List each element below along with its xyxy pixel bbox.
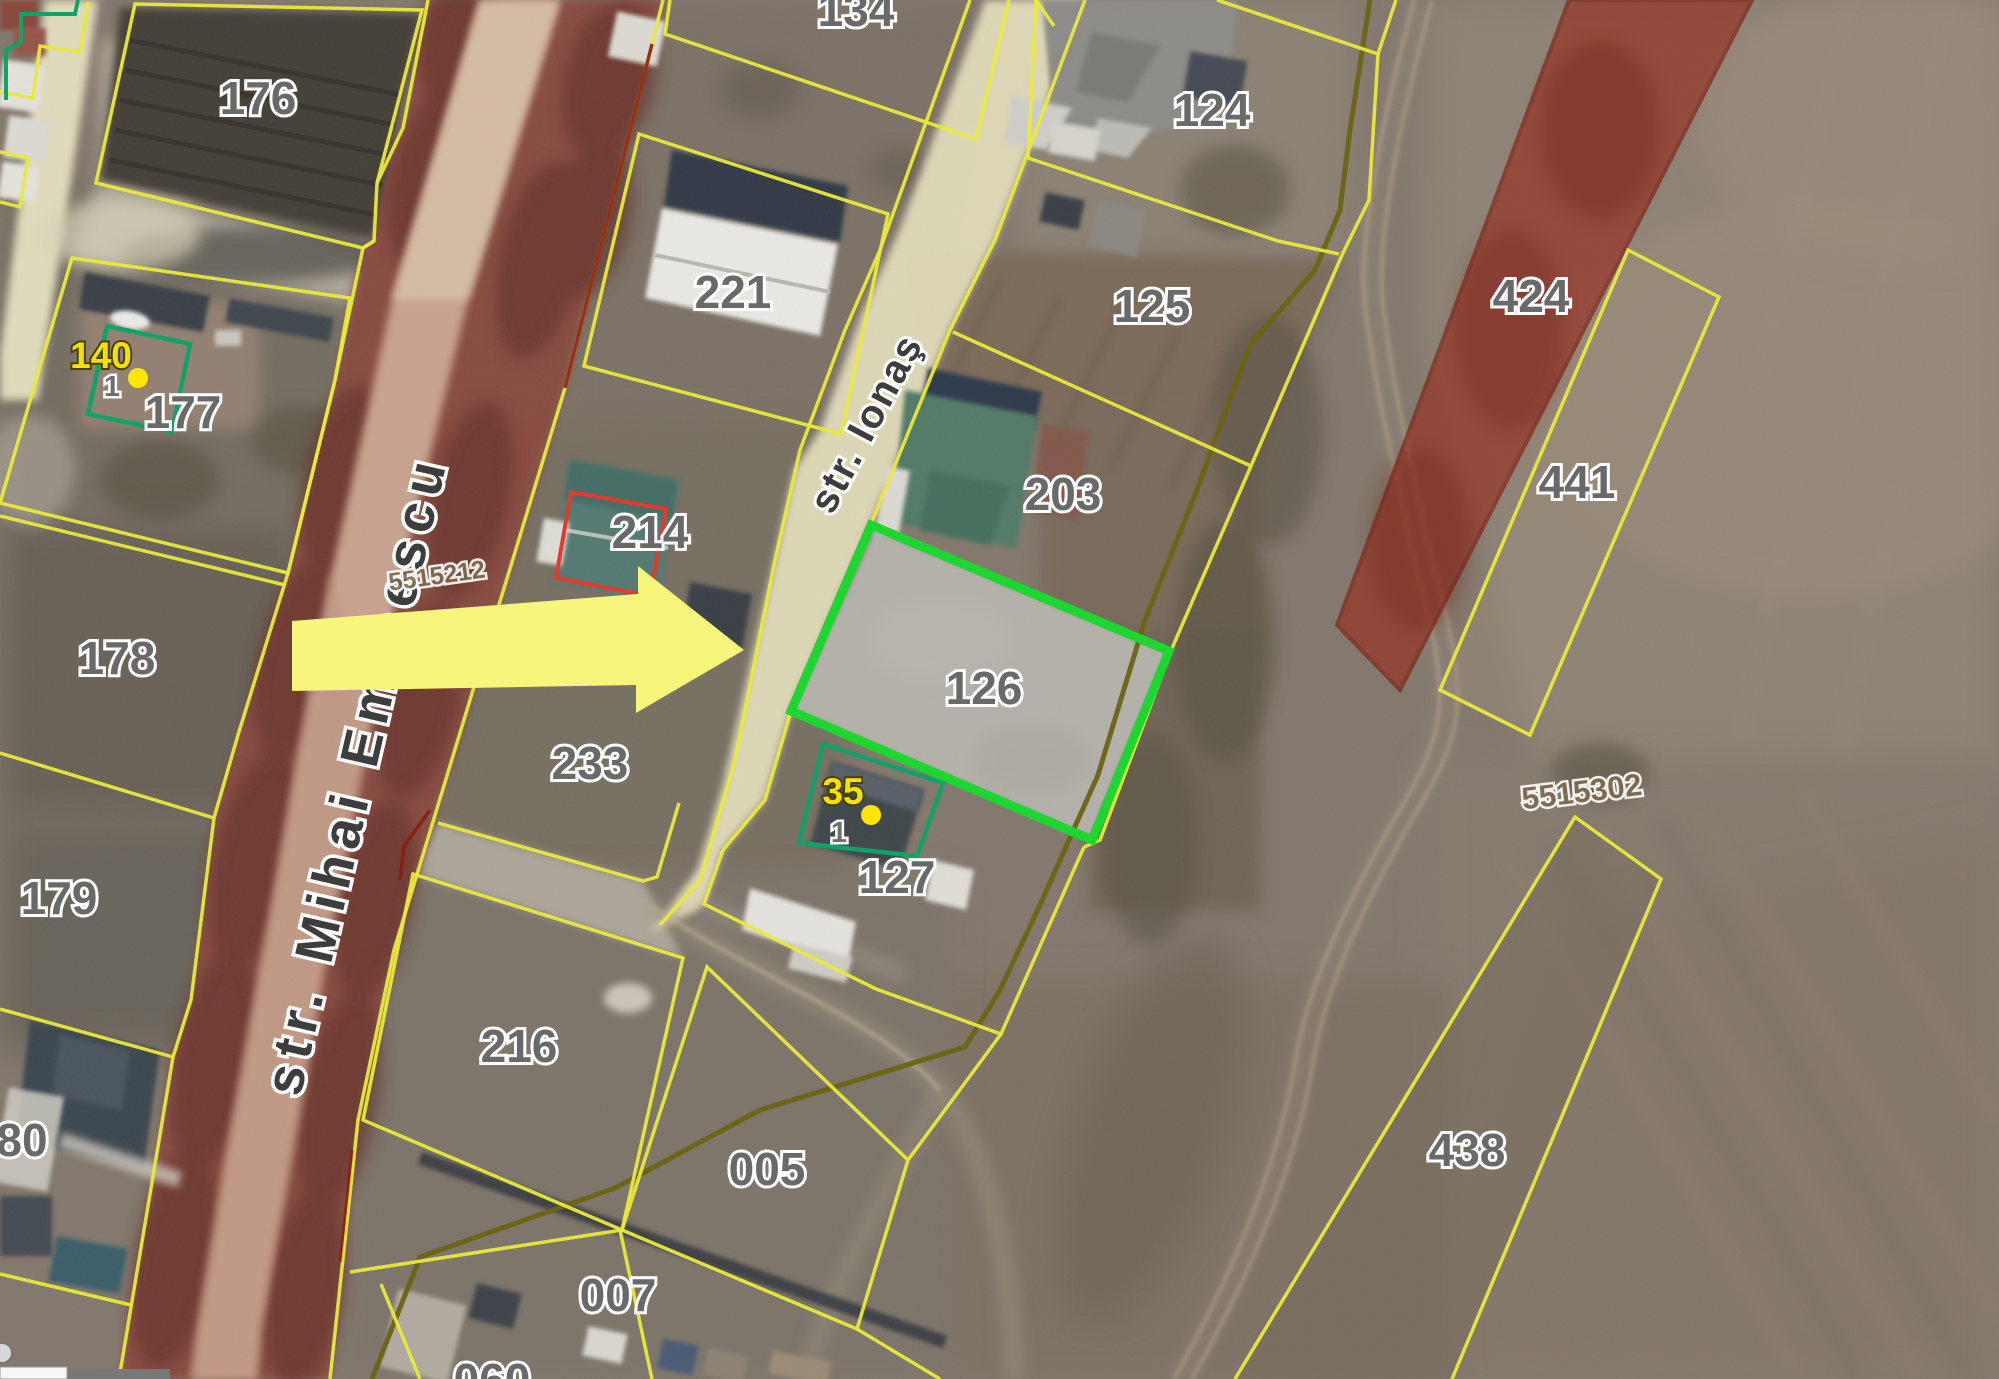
svg-text:441: 441 (1539, 456, 1616, 508)
svg-text:233: 233 (552, 737, 629, 789)
svg-text:203: 203 (1025, 468, 1102, 520)
svg-text:424: 424 (1493, 270, 1570, 322)
svg-text:176: 176 (220, 72, 297, 124)
svg-text:177: 177 (145, 386, 222, 438)
svg-text:35: 35 (822, 771, 863, 812)
svg-text:124: 124 (1174, 84, 1251, 136)
svg-text:125: 125 (1114, 280, 1191, 332)
svg-text:005: 005 (729, 1143, 806, 1195)
svg-text:80: 80 (0, 1114, 48, 1166)
svg-text:140: 140 (70, 335, 132, 376)
svg-text:007: 007 (580, 1269, 657, 1321)
svg-text:1: 1 (831, 817, 847, 849)
svg-text:127: 127 (859, 851, 936, 903)
svg-text:179: 179 (21, 872, 98, 924)
svg-text:126: 126 (946, 662, 1023, 714)
svg-text:060: 060 (454, 1354, 531, 1379)
svg-text:216: 216 (481, 1020, 558, 1072)
svg-text:134: 134 (818, 0, 895, 36)
svg-text:438: 438 (1429, 1124, 1506, 1176)
svg-text:1: 1 (104, 371, 120, 403)
svg-text:221: 221 (695, 266, 772, 318)
svg-text:214: 214 (612, 506, 689, 558)
svg-text:178: 178 (79, 632, 156, 684)
